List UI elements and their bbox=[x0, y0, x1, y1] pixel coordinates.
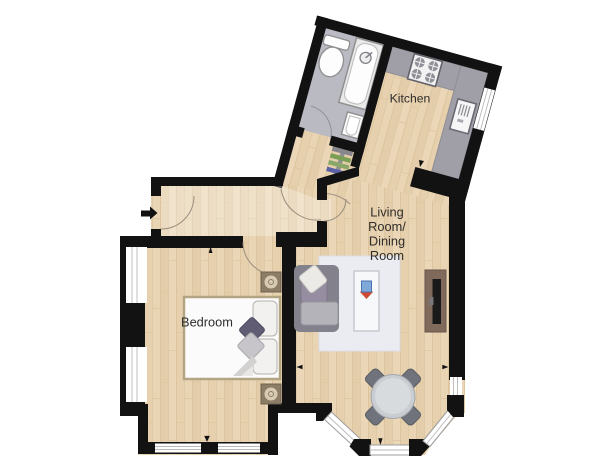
svg-text:Kitchen: Kitchen bbox=[390, 92, 431, 106]
svg-text:Bedroom: Bedroom bbox=[181, 315, 233, 330]
svg-text:Dining: Dining bbox=[369, 234, 405, 249]
svg-text:Room/: Room/ bbox=[368, 219, 406, 234]
svg-text:Room: Room bbox=[370, 248, 404, 263]
svg-text:Living: Living bbox=[370, 205, 403, 220]
